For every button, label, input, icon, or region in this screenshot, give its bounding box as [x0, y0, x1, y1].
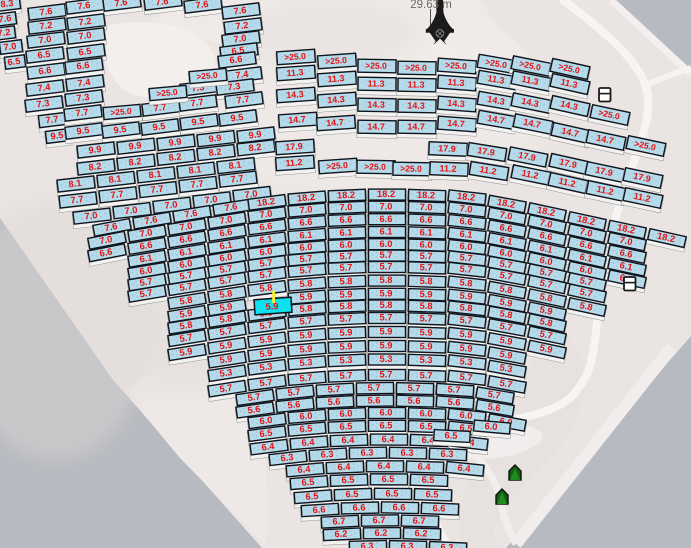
svg-text:5.7: 5.7 [327, 384, 340, 395]
svg-text:6.0: 6.0 [380, 408, 393, 418]
svg-text:14.3: 14.3 [447, 98, 465, 109]
svg-text:8.2: 8.2 [208, 147, 222, 158]
svg-text:6.4: 6.4 [337, 462, 351, 473]
svg-text:14.3: 14.3 [367, 99, 385, 109]
svg-text:5.9: 5.9 [219, 354, 233, 366]
svg-text:5.9: 5.9 [459, 290, 473, 301]
svg-text:6.3: 6.3 [400, 541, 413, 548]
svg-text:>25.0: >25.0 [365, 60, 387, 70]
svg-text:7.7: 7.7 [236, 94, 250, 106]
svg-text:6.1: 6.1 [259, 234, 273, 246]
svg-text:>25.0: >25.0 [405, 62, 427, 72]
svg-text:6.0: 6.0 [179, 258, 193, 270]
svg-text:5.7: 5.7 [259, 320, 273, 332]
svg-text:>25.0: >25.0 [325, 55, 348, 67]
svg-text:>25.0: >25.0 [284, 51, 307, 63]
svg-text:14.3: 14.3 [407, 100, 425, 110]
svg-text:5.8: 5.8 [419, 301, 432, 311]
svg-text:6.0: 6.0 [139, 265, 153, 277]
svg-text:6.5: 6.5 [444, 430, 457, 441]
svg-text:7.0: 7.0 [339, 202, 352, 213]
svg-text:6.6: 6.6 [229, 54, 243, 66]
svg-text:6.5: 6.5 [78, 46, 92, 58]
svg-text:5.8: 5.8 [179, 319, 193, 331]
svg-text:5.7: 5.7 [419, 313, 432, 323]
svg-text:5.9: 5.9 [219, 340, 233, 352]
svg-text:5.7: 5.7 [339, 370, 352, 381]
svg-text:7.6: 7.6 [77, 0, 91, 11]
svg-text:6.2: 6.2 [334, 529, 347, 540]
svg-text:5.9: 5.9 [299, 330, 313, 341]
svg-text:5.9: 5.9 [219, 301, 233, 313]
svg-text:5.7: 5.7 [219, 326, 233, 338]
svg-text:5.3: 5.3 [419, 355, 432, 365]
svg-text:6.4: 6.4 [417, 461, 431, 471]
svg-text:7.0: 7.0 [164, 199, 178, 210]
svg-text:5.6: 5.6 [287, 399, 301, 410]
svg-text:11.3: 11.3 [367, 78, 384, 88]
svg-text:6.0: 6.0 [419, 239, 432, 249]
svg-text:5.9: 5.9 [259, 348, 273, 360]
svg-text:5.8: 5.8 [419, 276, 432, 286]
svg-text:5.7: 5.7 [380, 370, 393, 380]
svg-text:5.8: 5.8 [459, 302, 473, 313]
svg-text:5.9: 5.9 [419, 341, 432, 351]
svg-text:6.3: 6.3 [360, 447, 373, 457]
svg-text:6.1: 6.1 [179, 246, 193, 258]
svg-text:5.7: 5.7 [139, 287, 153, 299]
svg-text:8.3: 8.3 [0, 0, 14, 9]
svg-text:5.9: 5.9 [265, 301, 279, 312]
svg-text:>25.0: >25.0 [110, 106, 132, 118]
svg-text:5.7: 5.7 [299, 265, 313, 276]
svg-text:6.5: 6.5 [299, 423, 313, 434]
svg-text:5.7: 5.7 [380, 262, 393, 272]
svg-text:5.6: 5.6 [407, 396, 420, 406]
svg-text:7.0: 7.0 [124, 205, 138, 216]
svg-text:5.7: 5.7 [380, 250, 393, 260]
svg-text:6.4: 6.4 [301, 437, 316, 448]
svg-text:7.4: 7.4 [77, 77, 92, 89]
svg-text:7.7: 7.7 [70, 194, 84, 205]
svg-text:6.4: 6.4 [297, 464, 312, 475]
svg-text:9.9: 9.9 [168, 137, 182, 148]
svg-text:11.3: 11.3 [286, 67, 304, 78]
svg-text:5.8: 5.8 [380, 275, 393, 285]
svg-text:5.9: 5.9 [380, 327, 393, 337]
svg-text:6.4: 6.4 [382, 434, 396, 444]
svg-text:8.2: 8.2 [88, 161, 102, 172]
svg-text:9.9: 9.9 [88, 144, 102, 155]
svg-text:6.1: 6.1 [419, 227, 432, 237]
svg-text:5.8: 5.8 [299, 303, 313, 314]
svg-text:5.3: 5.3 [299, 357, 313, 368]
svg-text:11.3: 11.3 [327, 73, 345, 84]
svg-text:29.63 m: 29.63 m [410, 0, 452, 11]
svg-text:5.7: 5.7 [219, 275, 233, 287]
svg-text:11.2: 11.2 [439, 163, 456, 174]
svg-text:6.3: 6.3 [280, 452, 294, 463]
svg-text:6.1: 6.1 [380, 227, 393, 237]
svg-text:7.7: 7.7 [190, 97, 204, 109]
svg-text:6.1: 6.1 [459, 229, 473, 240]
svg-text:5.7: 5.7 [247, 391, 261, 403]
svg-text:5.8: 5.8 [380, 300, 393, 310]
svg-text:6.5: 6.5 [385, 488, 398, 498]
svg-text:7.0: 7.0 [204, 194, 218, 205]
svg-text:17.9: 17.9 [285, 141, 303, 152]
svg-text:7.6: 7.6 [0, 13, 12, 25]
svg-text:9.5: 9.5 [152, 121, 166, 133]
svg-text:17.9: 17.9 [438, 143, 456, 154]
svg-text:7.2: 7.2 [0, 27, 11, 39]
svg-text:5.7: 5.7 [459, 252, 473, 263]
svg-text:6.5: 6.5 [341, 475, 354, 485]
svg-text:5.9: 5.9 [299, 291, 313, 302]
svg-text:18.2: 18.2 [417, 190, 435, 201]
svg-text:6.7: 6.7 [372, 515, 385, 525]
svg-text:11.3: 11.3 [447, 77, 465, 88]
svg-text:5.7: 5.7 [419, 262, 432, 272]
svg-text:6.4: 6.4 [261, 441, 276, 453]
svg-text:5.7: 5.7 [219, 263, 233, 275]
svg-text:6.0: 6.0 [299, 242, 313, 253]
svg-text:6.6: 6.6 [339, 214, 352, 225]
svg-text:6.0: 6.0 [219, 252, 233, 264]
svg-text:7.7: 7.7 [110, 189, 124, 200]
svg-text:5.8: 5.8 [339, 301, 352, 312]
svg-text:7.0: 7.0 [219, 214, 233, 226]
svg-text:6.4: 6.4 [457, 463, 472, 474]
svg-text:>25.0: >25.0 [196, 70, 218, 82]
svg-text:5.7: 5.7 [179, 332, 193, 344]
svg-text:5.6: 5.6 [247, 404, 261, 416]
svg-text:5.7: 5.7 [459, 315, 473, 326]
svg-text:6.5: 6.5 [419, 421, 432, 431]
svg-text:7.6: 7.6 [144, 214, 158, 226]
svg-text:8.2: 8.2 [128, 156, 142, 167]
svg-text:5.6: 5.6 [487, 401, 501, 413]
svg-text:6.6: 6.6 [380, 214, 393, 224]
svg-text:6.6: 6.6 [299, 217, 313, 228]
svg-text:6.0: 6.0 [259, 246, 273, 258]
svg-text:5.3: 5.3 [459, 356, 473, 367]
svg-text:14.7: 14.7 [407, 121, 425, 131]
svg-text:5.9: 5.9 [419, 327, 432, 337]
svg-text:9.9: 9.9 [208, 133, 222, 144]
svg-text:5.8: 5.8 [179, 295, 193, 307]
svg-text:7.7: 7.7 [45, 114, 59, 126]
svg-text:6.0: 6.0 [419, 408, 432, 418]
svg-text:5.7: 5.7 [459, 372, 473, 383]
svg-text:6.6: 6.6 [139, 240, 153, 252]
svg-text:6.6: 6.6 [259, 221, 273, 233]
svg-text:6.1: 6.1 [219, 240, 233, 252]
svg-text:5.7: 5.7 [487, 389, 501, 401]
svg-text:7.2: 7.2 [235, 20, 249, 32]
svg-text:6.6: 6.6 [352, 502, 365, 512]
svg-text:8.2: 8.2 [168, 151, 182, 162]
svg-text:5.8: 5.8 [219, 288, 233, 300]
svg-text:6.6: 6.6 [179, 233, 193, 245]
svg-text:6.6: 6.6 [432, 503, 445, 514]
svg-text:7.6: 7.6 [39, 6, 53, 18]
svg-text:5.7: 5.7 [339, 251, 352, 262]
svg-text:>25.0: >25.0 [364, 161, 386, 171]
svg-text:7.3: 7.3 [76, 92, 90, 104]
svg-text:6.0: 6.0 [484, 421, 498, 432]
svg-text:5.9: 5.9 [380, 288, 393, 298]
svg-text:6.0: 6.0 [259, 415, 273, 427]
svg-text:7.7: 7.7 [75, 107, 89, 119]
svg-text:11.2: 11.2 [285, 157, 303, 168]
svg-text:7.0: 7.0 [38, 34, 52, 46]
svg-text:5.7: 5.7 [179, 281, 193, 293]
svg-text:6.6: 6.6 [312, 504, 326, 515]
svg-text:5.7: 5.7 [459, 264, 473, 275]
svg-text:6.0: 6.0 [459, 241, 473, 252]
svg-text:5.7: 5.7 [380, 313, 393, 323]
svg-text:6.7: 6.7 [332, 516, 345, 527]
svg-text:6.5: 6.5 [259, 428, 273, 440]
svg-text:8.1: 8.1 [108, 173, 122, 184]
svg-text:5.7: 5.7 [339, 262, 352, 273]
svg-text:9.5: 9.5 [191, 116, 205, 128]
svg-text:5.7: 5.7 [259, 269, 273, 281]
svg-text:5.6: 5.6 [367, 395, 380, 405]
svg-text:6.0: 6.0 [380, 239, 393, 249]
svg-text:6.5: 6.5 [7, 56, 21, 68]
svg-text:18.2: 18.2 [297, 192, 316, 203]
svg-text:7.7: 7.7 [150, 184, 164, 195]
svg-text:>25.0: >25.0 [400, 163, 422, 173]
svg-text:7.0: 7.0 [139, 227, 153, 239]
svg-text:6.0: 6.0 [339, 408, 352, 419]
svg-text:6.0: 6.0 [299, 411, 313, 422]
svg-text:6.6: 6.6 [76, 60, 90, 72]
svg-text:6.4: 6.4 [378, 461, 392, 471]
svg-text:14.7: 14.7 [447, 118, 465, 129]
svg-text:5.7: 5.7 [447, 384, 461, 395]
svg-text:6.0: 6.0 [459, 410, 473, 421]
svg-text:5.8: 5.8 [339, 276, 352, 287]
svg-text:5.9: 5.9 [179, 346, 193, 358]
svg-text:7.0: 7.0 [419, 202, 432, 212]
svg-text:5.7: 5.7 [299, 253, 313, 264]
svg-text:7.7: 7.7 [230, 173, 244, 184]
svg-text:5.7: 5.7 [367, 383, 380, 393]
svg-text:>25.0: >25.0 [445, 60, 468, 72]
svg-text:14.7: 14.7 [288, 114, 306, 125]
svg-text:6.5: 6.5 [380, 420, 393, 430]
svg-text:8.2: 8.2 [248, 142, 262, 153]
svg-text:6.4: 6.4 [341, 435, 355, 446]
svg-text:5.9: 5.9 [459, 343, 473, 354]
svg-text:5.9: 5.9 [299, 344, 313, 355]
svg-text:6.2: 6.2 [374, 528, 387, 538]
svg-text:6.5: 6.5 [382, 474, 395, 484]
svg-text:6.6: 6.6 [38, 65, 52, 77]
svg-text:6.3: 6.3 [440, 542, 453, 548]
svg-text:5.9: 5.9 [459, 329, 473, 340]
svg-text:5.9: 5.9 [259, 334, 273, 346]
svg-text:6.5: 6.5 [37, 49, 51, 61]
svg-text:14.3: 14.3 [286, 89, 304, 100]
svg-text:7.3: 7.3 [36, 98, 50, 110]
svg-text:5.7: 5.7 [407, 383, 420, 393]
svg-text:6.5: 6.5 [345, 489, 358, 499]
svg-text:5.9: 5.9 [419, 289, 432, 299]
svg-text:7.0: 7.0 [299, 204, 313, 215]
svg-text:9.5: 9.5 [76, 125, 90, 137]
svg-text:8.1: 8.1 [68, 178, 82, 189]
svg-text:5.9: 5.9 [339, 341, 352, 352]
svg-text:5.8: 5.8 [459, 277, 473, 288]
svg-text:5.6: 5.6 [447, 397, 461, 408]
svg-text:5.8: 5.8 [299, 278, 313, 289]
svg-text:14.3: 14.3 [327, 94, 345, 105]
svg-text:6.2: 6.2 [414, 528, 427, 538]
svg-text:6.6: 6.6 [419, 214, 432, 224]
svg-text:5.7: 5.7 [219, 383, 233, 395]
svg-text:6.7: 6.7 [412, 515, 425, 525]
svg-text:5.6: 5.6 [327, 396, 340, 407]
svg-text:7.0: 7.0 [259, 208, 273, 220]
svg-text:14.7: 14.7 [367, 121, 385, 131]
svg-text:5.3: 5.3 [339, 355, 352, 366]
svg-text:6.6: 6.6 [459, 216, 473, 227]
svg-text:6.6: 6.6 [392, 502, 405, 512]
svg-text:6.0: 6.0 [339, 239, 352, 250]
svg-text:5.3: 5.3 [259, 361, 273, 373]
svg-text:6.1: 6.1 [139, 252, 153, 264]
svg-text:7.0: 7.0 [78, 30, 92, 42]
svg-text:5.8: 5.8 [259, 282, 273, 294]
svg-text:6.1: 6.1 [299, 230, 313, 241]
svg-text:7.6: 7.6 [195, 0, 209, 10]
svg-text:7.6: 7.6 [224, 201, 238, 213]
svg-text:6.3: 6.3 [360, 541, 373, 548]
svg-text:7.2: 7.2 [39, 20, 53, 32]
svg-text:5.3: 5.3 [380, 354, 393, 364]
svg-text:5.7: 5.7 [299, 373, 313, 384]
svg-text:8.1: 8.1 [228, 160, 242, 171]
svg-text:7.6: 7.6 [233, 5, 247, 17]
svg-text:7.0: 7.0 [179, 221, 193, 233]
svg-text:5.7: 5.7 [179, 270, 193, 282]
svg-text:9.5: 9.5 [50, 130, 64, 142]
svg-text:>25.0: >25.0 [326, 160, 349, 172]
svg-text:5.7: 5.7 [139, 276, 153, 288]
svg-text:5.7: 5.7 [287, 387, 301, 398]
svg-text:5.9: 5.9 [380, 341, 393, 351]
svg-text:9.9: 9.9 [248, 129, 262, 140]
svg-text:18.2: 18.2 [377, 189, 395, 199]
svg-text:7.2: 7.2 [78, 16, 92, 28]
svg-text:7.0: 7.0 [3, 41, 17, 53]
svg-text:7.0: 7.0 [84, 210, 98, 221]
svg-text:6.5: 6.5 [301, 477, 315, 488]
svg-text:6.5: 6.5 [339, 421, 352, 432]
svg-text:9.5: 9.5 [113, 124, 127, 136]
svg-text:6.6: 6.6 [219, 227, 233, 239]
svg-text:7.0: 7.0 [233, 33, 247, 45]
svg-text:6.5: 6.5 [305, 491, 319, 502]
svg-text:6.3: 6.3 [440, 449, 453, 460]
svg-text:6.3: 6.3 [320, 449, 334, 460]
svg-text:18.2: 18.2 [457, 191, 476, 203]
svg-text:5.8: 5.8 [219, 313, 233, 325]
svg-text:5.3: 5.3 [219, 367, 233, 379]
svg-text:7.7: 7.7 [190, 178, 204, 189]
svg-text:6.3: 6.3 [400, 448, 413, 458]
svg-text:6.1: 6.1 [339, 227, 352, 238]
svg-text:7.4: 7.4 [37, 82, 52, 94]
svg-text:8.1: 8.1 [148, 169, 162, 180]
svg-text:5.7: 5.7 [259, 257, 273, 269]
svg-text:7.6: 7.6 [184, 208, 198, 220]
svg-text:7.0: 7.0 [380, 201, 393, 211]
svg-text:9.9: 9.9 [128, 140, 142, 151]
svg-text:14.7: 14.7 [326, 117, 344, 128]
svg-text:5.7: 5.7 [419, 251, 432, 261]
svg-text:7.3: 7.3 [227, 81, 241, 93]
svg-text:11.3: 11.3 [407, 79, 424, 89]
svg-text:5.9: 5.9 [339, 327, 352, 338]
svg-text:6.5: 6.5 [421, 475, 434, 485]
svg-text:8.1: 8.1 [188, 164, 202, 175]
svg-text:>25.0: >25.0 [156, 87, 178, 99]
svg-text:9.5: 9.5 [230, 112, 244, 124]
svg-text:5.7: 5.7 [299, 316, 313, 327]
svg-text:5.9: 5.9 [339, 289, 352, 300]
svg-text:5.9: 5.9 [179, 308, 193, 320]
svg-text:18.2: 18.2 [337, 190, 356, 201]
svg-text:7.0: 7.0 [459, 203, 473, 214]
svg-text:5.7: 5.7 [339, 313, 352, 324]
svg-text:5.7: 5.7 [419, 370, 432, 380]
svg-text:6.5: 6.5 [425, 489, 438, 499]
svg-text:5.7: 5.7 [259, 377, 273, 389]
